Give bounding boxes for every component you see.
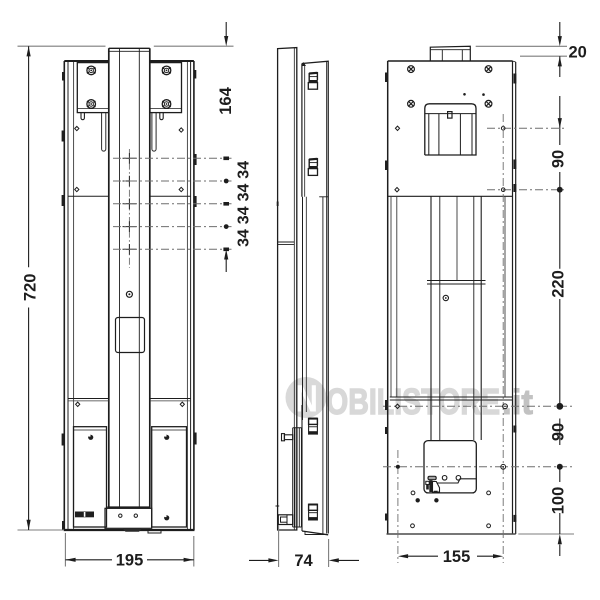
svg-text:.it: .it: [502, 383, 533, 422]
svg-text:90: 90: [550, 423, 568, 441]
svg-text:34: 34: [236, 161, 253, 179]
svg-text:100: 100: [550, 487, 568, 515]
svg-text:34: 34: [236, 184, 253, 202]
svg-text:155: 155: [443, 548, 471, 566]
svg-text:164: 164: [217, 86, 235, 114]
svg-text:90: 90: [550, 150, 568, 168]
svg-text:34: 34: [236, 206, 253, 224]
svg-text:195: 195: [116, 552, 144, 570]
svg-text:20: 20: [569, 44, 587, 62]
svg-text:720: 720: [22, 274, 40, 302]
svg-text:34: 34: [236, 229, 253, 247]
svg-text:74: 74: [294, 552, 313, 570]
svg-text:220: 220: [550, 270, 568, 298]
